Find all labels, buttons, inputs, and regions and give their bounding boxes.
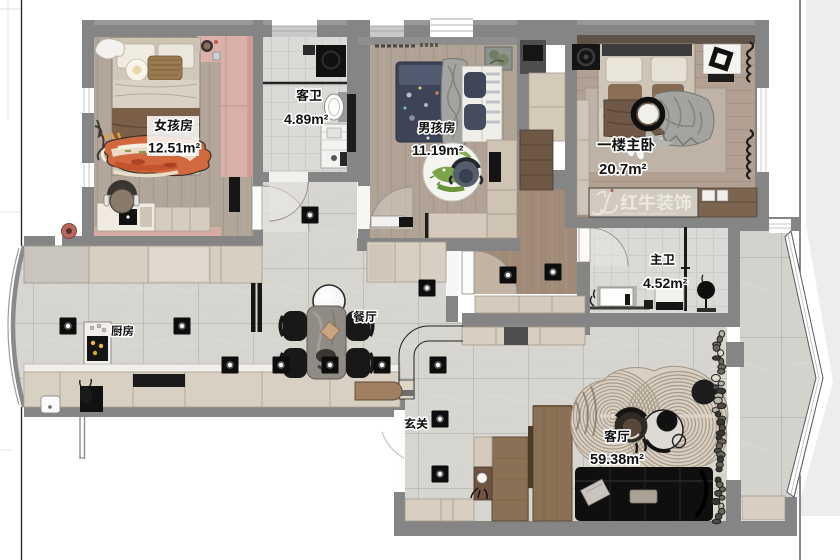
svg-text:59.38m²: 59.38m² [590, 452, 644, 468]
svg-text:12.51m²: 12.51m² [148, 140, 200, 156]
svg-text:11.19m²: 11.19m² [412, 142, 464, 158]
svg-text:4.52m²: 4.52m² [643, 275, 688, 291]
svg-text:4.89m²: 4.89m² [284, 111, 329, 127]
svg-text:20.7m²: 20.7m² [599, 161, 647, 178]
